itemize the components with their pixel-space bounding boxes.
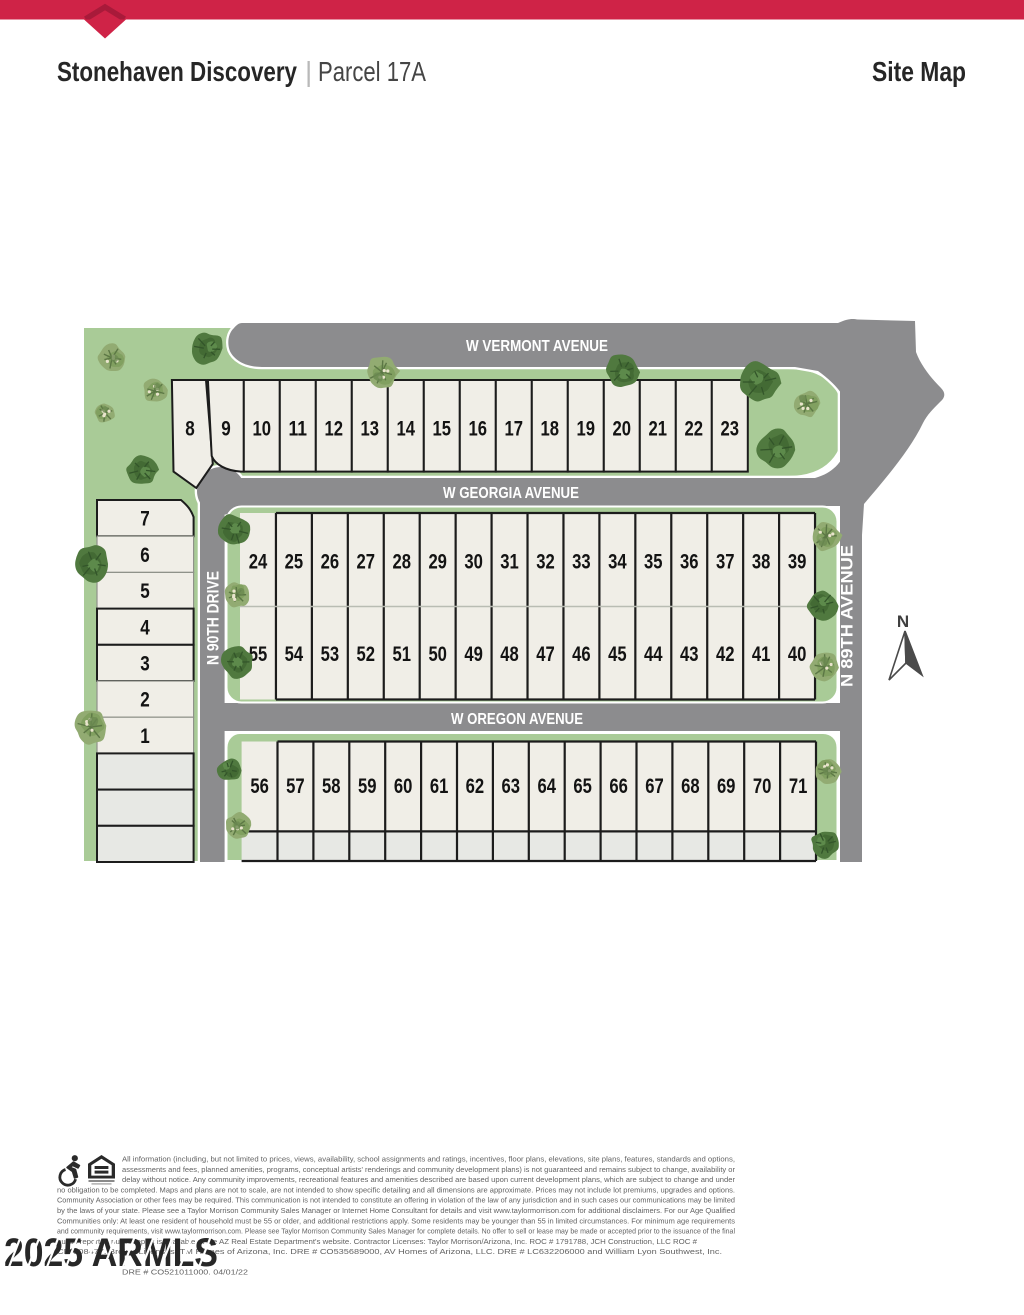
svg-text:52: 52 <box>357 642 376 666</box>
svg-text:11: 11 <box>289 417 308 441</box>
svg-text:47: 47 <box>536 642 555 666</box>
svg-text:24: 24 <box>249 549 268 573</box>
svg-text:27: 27 <box>357 549 376 573</box>
svg-text:Site Map: Site Map <box>872 56 966 87</box>
svg-text:by the laws of your state. Ple: by the laws of your state. Please see a … <box>57 1206 735 1215</box>
svg-text:2: 2 <box>140 688 150 712</box>
svg-text:64: 64 <box>538 774 557 798</box>
svg-text:9: 9 <box>221 417 231 441</box>
svg-text:48: 48 <box>500 642 519 666</box>
svg-text:21: 21 <box>649 417 668 441</box>
svg-text:delay without notice. Any comm: delay without notice. Any community impr… <box>122 1175 735 1184</box>
svg-text:32: 32 <box>536 549 555 573</box>
svg-text:62: 62 <box>466 774 485 798</box>
svg-text:1: 1 <box>140 724 150 748</box>
svg-text:60: 60 <box>394 774 413 798</box>
svg-text:63: 63 <box>502 774 521 798</box>
svg-text:3: 3 <box>140 652 150 676</box>
svg-text:16: 16 <box>469 417 488 441</box>
svg-text:39: 39 <box>788 549 807 573</box>
svg-text:Communities only: At least one: Communities only: At least one resident … <box>57 1216 735 1225</box>
svg-text:58: 58 <box>322 774 341 798</box>
svg-text:65: 65 <box>573 774 592 798</box>
svg-text:8: 8 <box>185 417 195 441</box>
svg-text:29: 29 <box>428 549 447 573</box>
svg-text:30: 30 <box>464 549 483 573</box>
svg-text:69: 69 <box>717 774 736 798</box>
svg-text:43: 43 <box>680 642 699 666</box>
svg-text:42: 42 <box>716 642 735 666</box>
svg-text:26: 26 <box>321 549 340 573</box>
svg-text:66: 66 <box>609 774 628 798</box>
svg-text:20: 20 <box>613 417 632 441</box>
svg-text:10: 10 <box>253 417 272 441</box>
svg-text:W GEORGIA AVENUE: W GEORGIA AVENUE <box>443 485 579 502</box>
svg-text:12: 12 <box>325 417 344 441</box>
svg-text:|: | <box>305 56 312 87</box>
svg-text:50: 50 <box>428 642 447 666</box>
svg-text:61: 61 <box>430 774 449 798</box>
svg-text:70: 70 <box>753 774 772 798</box>
svg-text:68: 68 <box>681 774 700 798</box>
svg-text:N 90TH DRIVE: N 90TH DRIVE <box>205 571 223 665</box>
svg-text:54: 54 <box>285 642 304 666</box>
svg-text:38: 38 <box>752 549 771 573</box>
svg-text:6: 6 <box>140 543 150 567</box>
svg-text:14: 14 <box>397 417 416 441</box>
svg-text:51: 51 <box>392 642 411 666</box>
svg-text:5: 5 <box>140 579 150 603</box>
svg-text:57: 57 <box>286 774 305 798</box>
svg-text:25: 25 <box>285 549 304 573</box>
svg-text:7: 7 <box>140 507 150 531</box>
svg-text:53: 53 <box>321 642 340 666</box>
svg-text:49: 49 <box>464 642 483 666</box>
svg-text:40: 40 <box>788 642 807 666</box>
svg-text:44: 44 <box>644 642 663 666</box>
svg-text:13: 13 <box>361 417 380 441</box>
svg-text:N 89TH AVENUE: N 89TH AVENUE <box>839 545 857 687</box>
svg-text:W VERMONT AVENUE: W VERMONT AVENUE <box>466 338 608 355</box>
svg-text:19: 19 <box>577 417 596 441</box>
svg-text:18: 18 <box>541 417 560 441</box>
svg-text:23: 23 <box>721 417 740 441</box>
svg-text:All information (including, bu: All information (including, but not limi… <box>122 1155 735 1164</box>
svg-text:assessments and fees, planned: assessments and fees, planned amenities,… <box>122 1165 735 1174</box>
svg-text:46: 46 <box>572 642 591 666</box>
svg-text:N: N <box>897 612 909 631</box>
svg-text:Stonehaven Discovery: Stonehaven Discovery <box>57 56 297 87</box>
svg-text:35: 35 <box>644 549 663 573</box>
svg-text:28: 28 <box>392 549 411 573</box>
svg-text:41: 41 <box>752 642 771 666</box>
svg-text:45: 45 <box>608 642 627 666</box>
svg-text:22: 22 <box>685 417 704 441</box>
svg-text:71: 71 <box>789 774 808 798</box>
svg-text:37: 37 <box>716 549 735 573</box>
svg-text:17: 17 <box>505 417 524 441</box>
svg-text:W OREGON AVENUE: W OREGON AVENUE <box>451 711 583 728</box>
svg-text:no obligation to be completed.: no obligation to be completed. Maps and … <box>57 1185 735 1194</box>
svg-text:Community Association or other: Community Association or other fees may … <box>57 1196 735 1205</box>
svg-text:Parcel 17A: Parcel 17A <box>318 56 426 87</box>
svg-text:67: 67 <box>645 774 664 798</box>
svg-text:15: 15 <box>433 417 452 441</box>
svg-text:31: 31 <box>500 549 519 573</box>
svg-text:4: 4 <box>140 615 150 639</box>
svg-text:59: 59 <box>358 774 377 798</box>
svg-text:34: 34 <box>608 549 627 573</box>
svg-text:56: 56 <box>250 774 269 798</box>
svg-text:33: 33 <box>572 549 591 573</box>
svg-text:36: 36 <box>680 549 699 573</box>
